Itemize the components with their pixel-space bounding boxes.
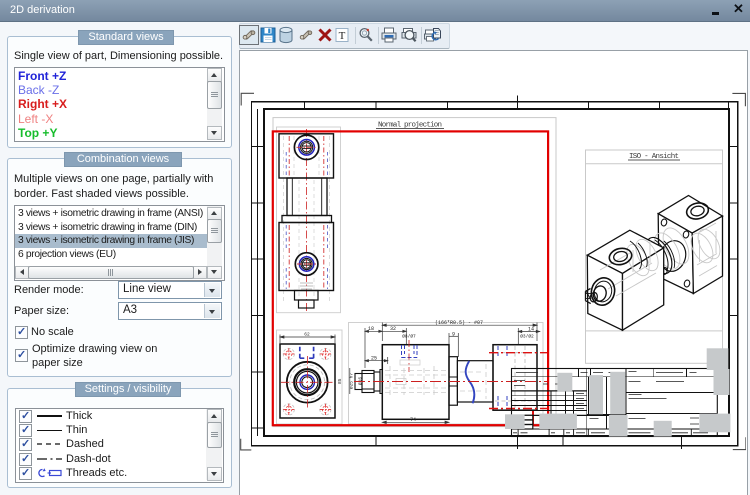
svg-text:Ø8/Ø7: Ø8/Ø7 (402, 333, 416, 340)
svg-text:32: 32 (390, 326, 396, 332)
svg-text:Normal projection: Normal projection (378, 121, 442, 129)
svg-text:18: 18 (368, 326, 374, 332)
svg-text:T: T (339, 30, 346, 42)
svg-text:74: 74 (410, 417, 416, 423)
svg-text:(166*R0.5) - #07: (166*R0.5) - #07 (435, 320, 483, 326)
svg-text:9: 9 (452, 331, 455, 337)
svg-text:62: 62 (304, 332, 310, 338)
svg-text:Ø25 h7: Ø25 h7 (348, 373, 355, 390)
svg-text:25: 25 (371, 355, 377, 361)
svg-text:85: 85 (337, 378, 343, 384)
svg-text:Ø3/Ø2: Ø3/Ø2 (520, 333, 534, 340)
svg-text:14: 14 (528, 327, 534, 333)
